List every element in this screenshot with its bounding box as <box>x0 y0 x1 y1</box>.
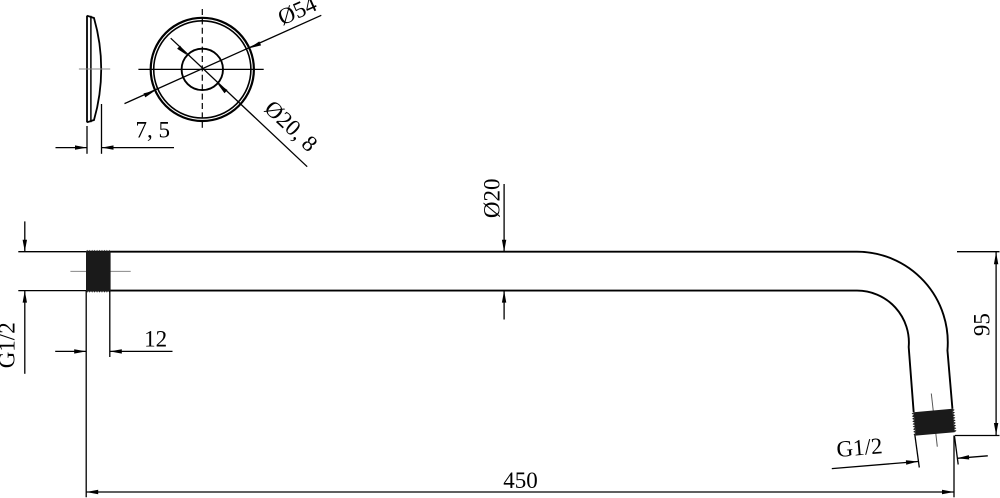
svg-text:7, 5: 7, 5 <box>136 118 171 143</box>
svg-text:Ø20: Ø20 <box>480 178 505 218</box>
svg-text:12: 12 <box>144 327 167 352</box>
svg-text:450: 450 <box>503 468 538 493</box>
svg-text:95: 95 <box>970 313 995 336</box>
svg-text:Ø20, 8: Ø20, 8 <box>260 95 323 156</box>
svg-text:G1/2: G1/2 <box>835 433 883 462</box>
svg-text:G1/2: G1/2 <box>0 322 20 368</box>
